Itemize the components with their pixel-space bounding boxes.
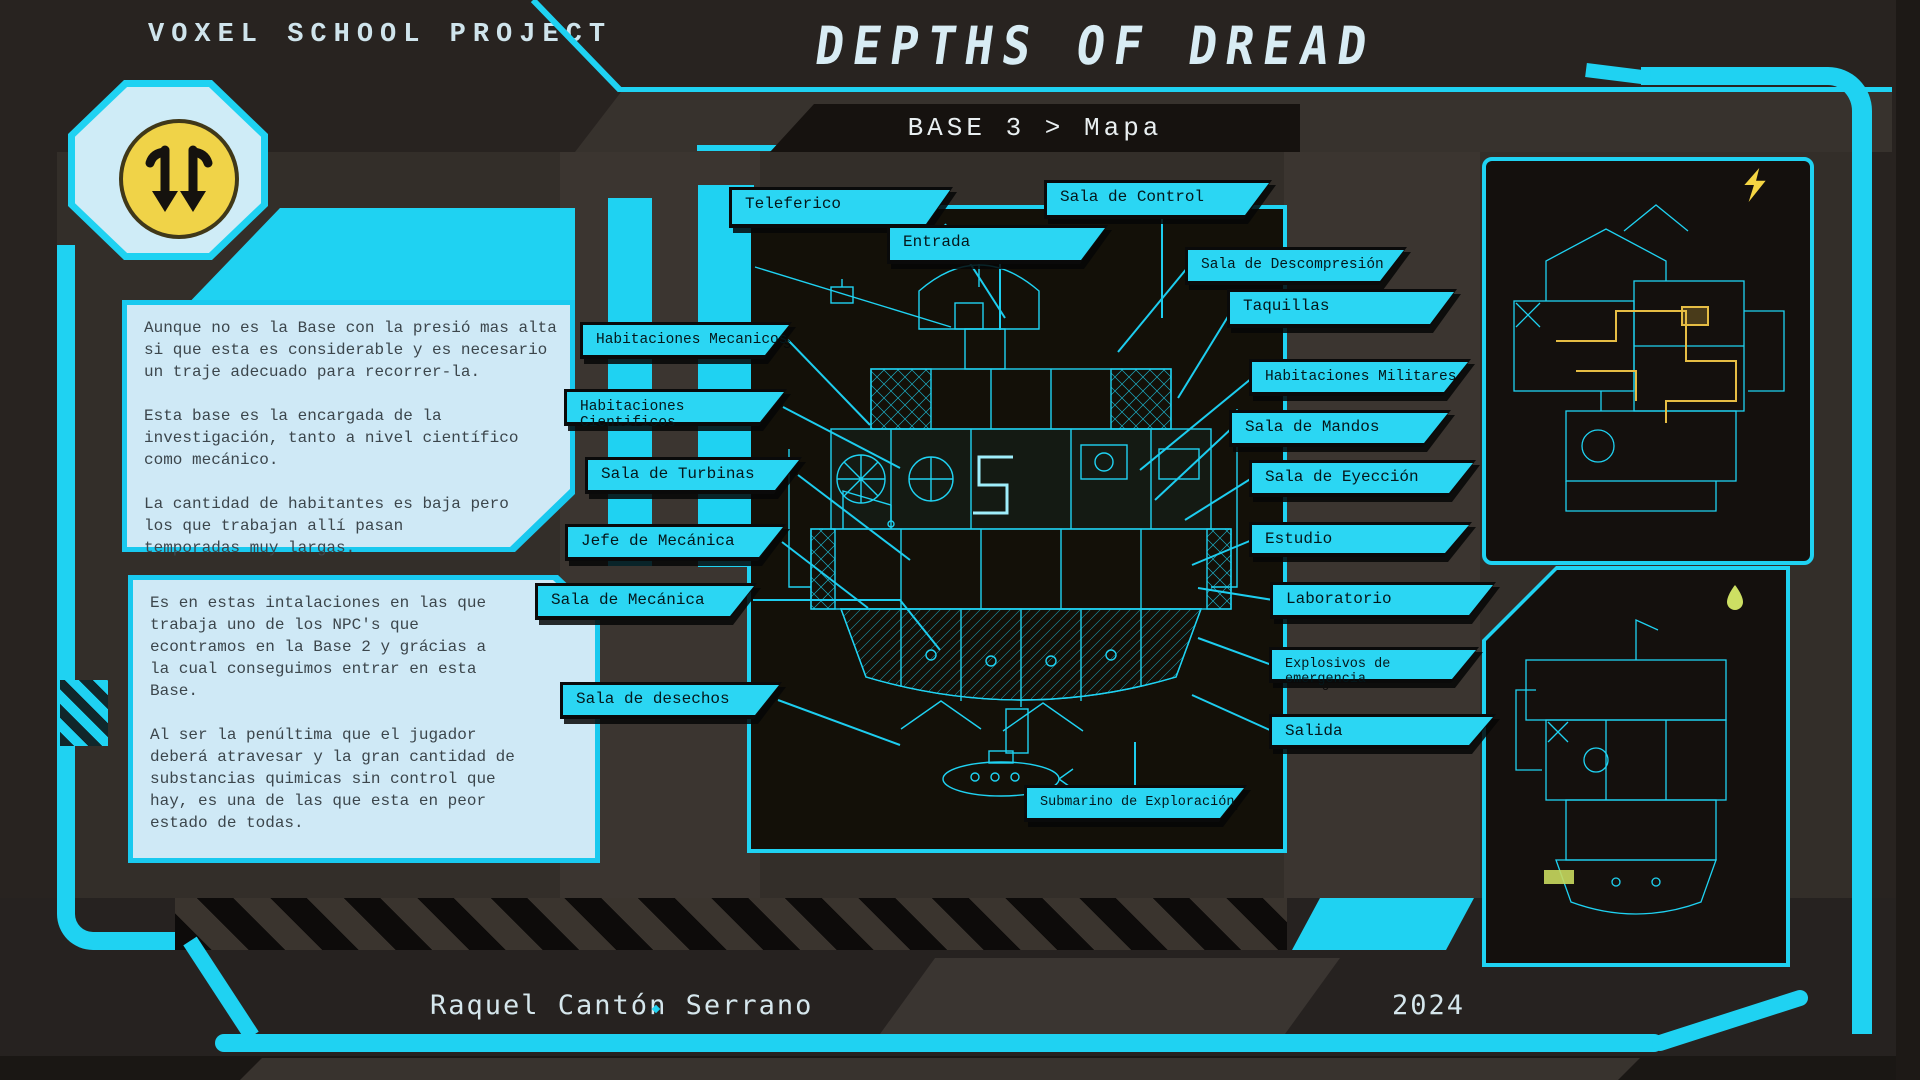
lightning-icon (1742, 168, 1768, 202)
base-map-panel (747, 205, 1287, 853)
poster: VOXEL SCHOOL PROJECT DEPTHS OF DREAD BAS… (0, 0, 1920, 1080)
map-label-entrada: Entrada (890, 228, 1105, 260)
map-label-sala-de-descompresion: Sala de Descompresión (1188, 250, 1404, 281)
double-down-arrows-icon (119, 119, 239, 239)
breadcrumb: BASE 3 > Mapa (908, 113, 1163, 143)
map-label-salida: Salida (1272, 717, 1493, 745)
map-label-habitaciones-militares: Habitaciones Militares (1252, 362, 1468, 392)
cyan-pillar-b (698, 185, 754, 567)
game-title: DEPTHS OF DREAD (811, 16, 1379, 78)
hazard-stripes (175, 898, 1287, 950)
map-label-sala-de-desechos: Sala de desechos (563, 685, 779, 715)
base-map-drawing (751, 209, 1275, 841)
author-name: Raquel Cantón Serrano (430, 990, 813, 1021)
footer-chevron (880, 958, 1340, 1034)
left-stripe-box (60, 680, 108, 746)
info-box-2-text: Es en estas intalaciones en las que trab… (128, 575, 600, 834)
logo-badge (68, 80, 268, 260)
map-label-sala-de-turbinas: Sala de Turbinas (588, 460, 799, 490)
map-label-estudio: Estudio (1252, 525, 1469, 553)
map-label-habitaciones-cientificos: Habitaciones Cientificos (567, 392, 784, 422)
cyan-pillar-a (608, 198, 652, 566)
map-label-submarino-de-exploracion: Submarino de Exploración (1027, 788, 1244, 818)
logo-badge-inner (75, 87, 261, 253)
map-label-laboratorio: Laboratorio (1273, 585, 1493, 615)
map-label-teleferico: Teleferico (732, 190, 950, 224)
map-label-jefe-de-mecanica: Jefe de Mecánica (568, 527, 783, 557)
year: 2024 (1392, 990, 1465, 1021)
map-label-sala-de-eyeccion: Sala de Eyección (1252, 463, 1473, 493)
frame-bottom-bar (215, 1034, 1663, 1052)
map-label-taquillas: Taquillas (1230, 292, 1454, 324)
map-label-sala-de-mecanica: Sala de Mecánica (538, 586, 754, 616)
info-box-1-text: Aunque no es la Base con la presió mas a… (122, 300, 575, 559)
info-box-2: Es en estas intalaciones en las que trab… (128, 575, 600, 863)
breadcrumb-banner: BASE 3 > Mapa (770, 104, 1300, 152)
minimap-panel-bottom (1482, 566, 1790, 967)
map-label-sala-de-mandos: Sala de Mandos (1232, 413, 1448, 443)
project-label: VOXEL SCHOOL PROJECT (148, 20, 612, 50)
footer-strip (240, 1058, 1640, 1080)
map-label-habitaciones-mecanicos: Habitaciones Mecanicos (583, 325, 789, 355)
map-label-sala-de-control: Sala de Control (1047, 183, 1269, 215)
map-label-explosivos-de-emergencia: Explosivos de emergencia (1272, 650, 1476, 679)
hazard-cyan-block (1292, 898, 1474, 950)
minimap-panel-top (1482, 157, 1814, 565)
info-box-1: Aunque no es la Base con la presió mas a… (122, 300, 575, 552)
droplet-icon (1726, 585, 1744, 611)
right-edge (1896, 0, 1920, 1080)
